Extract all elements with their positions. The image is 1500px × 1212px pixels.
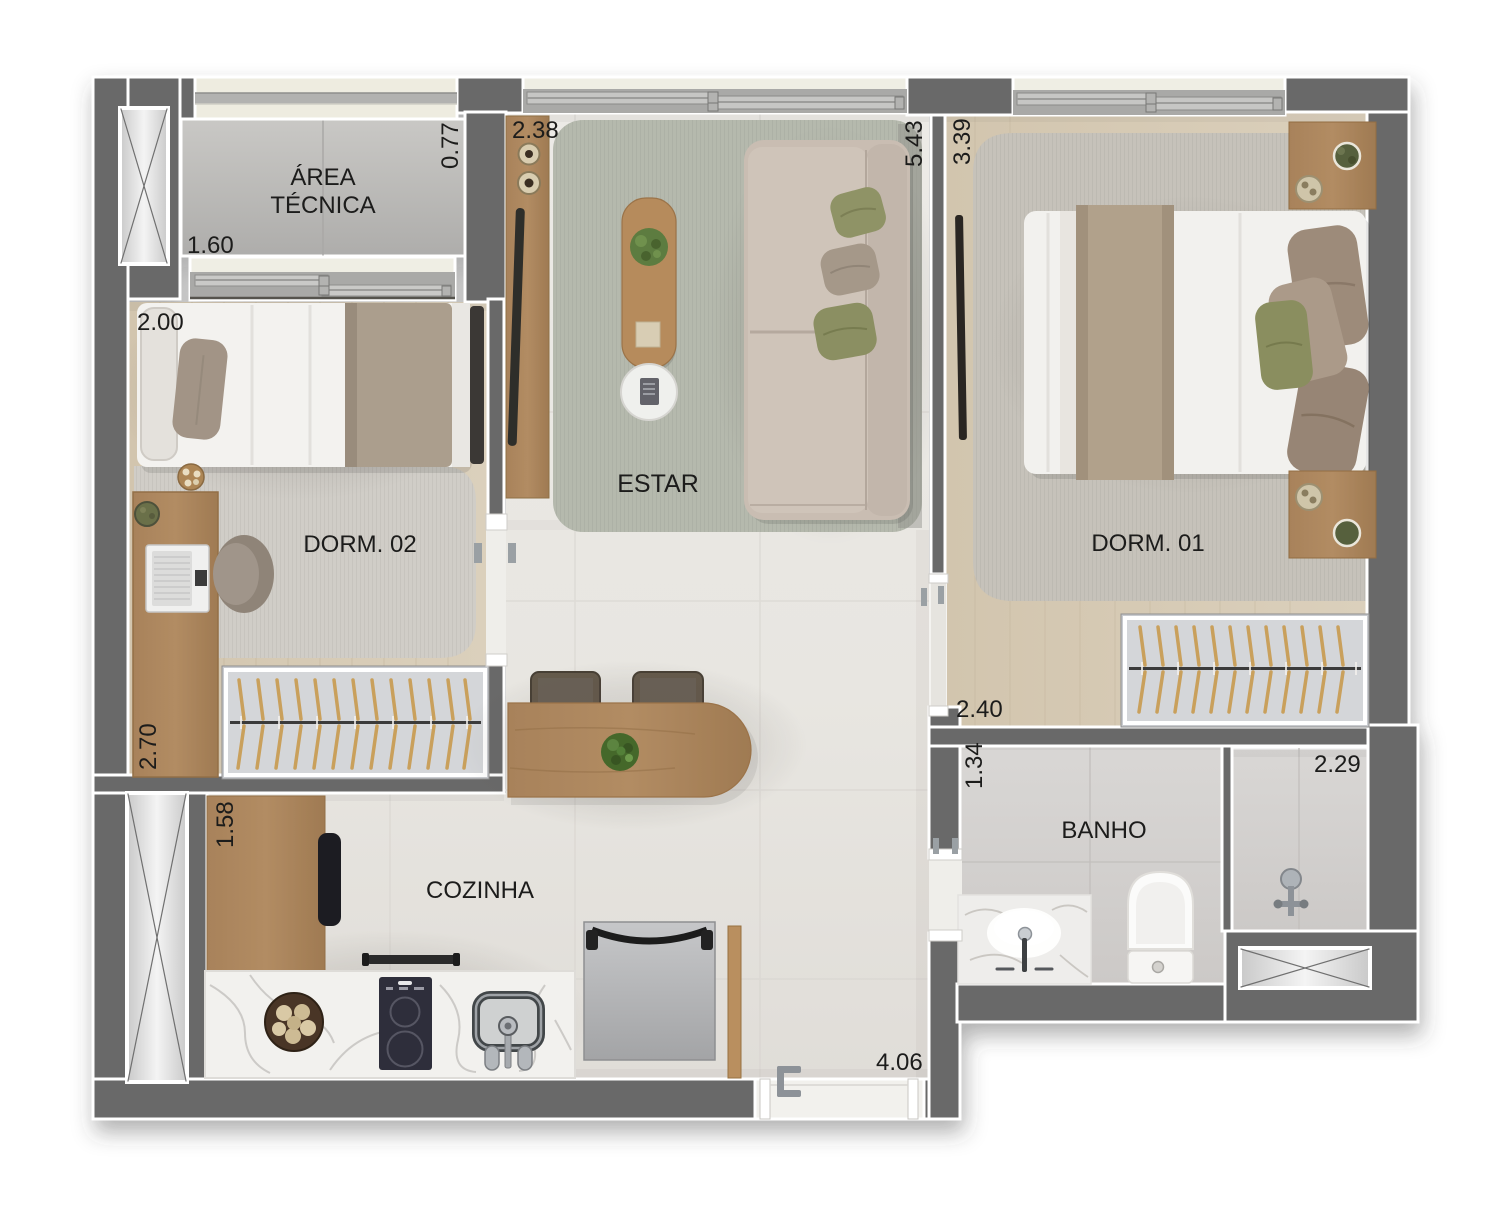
svg-text:0.77: 0.77 <box>437 122 464 169</box>
svg-text:BANHO: BANHO <box>1061 817 1146 844</box>
svg-text:2.29: 2.29 <box>1314 751 1361 778</box>
svg-text:COZINHA: COZINHA <box>426 877 534 904</box>
svg-text:1.34: 1.34 <box>961 742 988 789</box>
svg-text:ÁREA: ÁREA <box>290 164 355 191</box>
svg-text:ESTAR: ESTAR <box>617 470 699 498</box>
svg-text:TÉCNICA: TÉCNICA <box>270 192 375 219</box>
svg-text:5.43: 5.43 <box>901 120 928 167</box>
svg-text:DORM. 01: DORM. 01 <box>1091 530 1204 557</box>
svg-text:2.40: 2.40 <box>956 696 1003 723</box>
svg-text:3.39: 3.39 <box>949 118 976 165</box>
svg-text:1.60: 1.60 <box>187 232 234 259</box>
svg-text:2.70: 2.70 <box>135 723 162 770</box>
svg-text:4.06: 4.06 <box>876 1049 923 1076</box>
svg-text:2.00: 2.00 <box>137 309 184 336</box>
svg-text:1.58: 1.58 <box>212 801 239 848</box>
svg-text:DORM. 02: DORM. 02 <box>303 531 416 558</box>
svg-text:2.38: 2.38 <box>512 117 559 144</box>
